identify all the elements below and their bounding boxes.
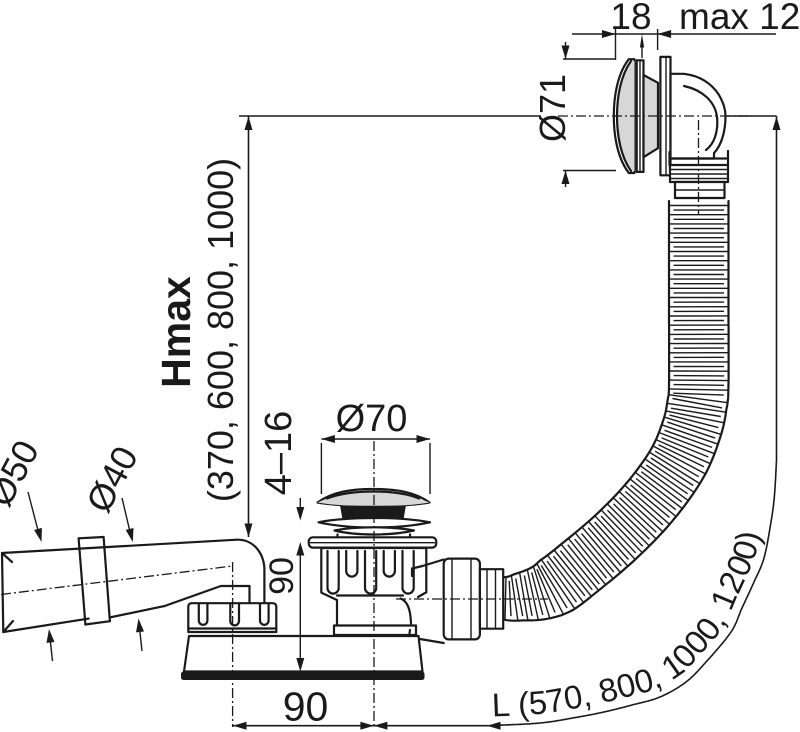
svg-text:Ø50: Ø50 [0,433,47,512]
svg-text:18: 18 [610,0,651,37]
svg-text:90: 90 [283,684,329,730]
svg-text:max 12: max 12 [679,0,800,37]
svg-text:Ø71: Ø71 [532,74,573,142]
svg-text:Ø40: Ø40 [78,439,146,518]
svg-text:(370, 600, 800, 1000): (370, 600, 800, 1000) [200,158,241,502]
svg-text:Hmax: Hmax [153,276,199,388]
svg-text:L (570, 800, 1000, 1200): L (570, 800, 1000, 1200) [491,528,767,724]
svg-text:90: 90 [263,557,301,595]
svg-text:Ø70: Ø70 [336,398,408,440]
svg-text:4–16: 4–16 [258,411,300,496]
